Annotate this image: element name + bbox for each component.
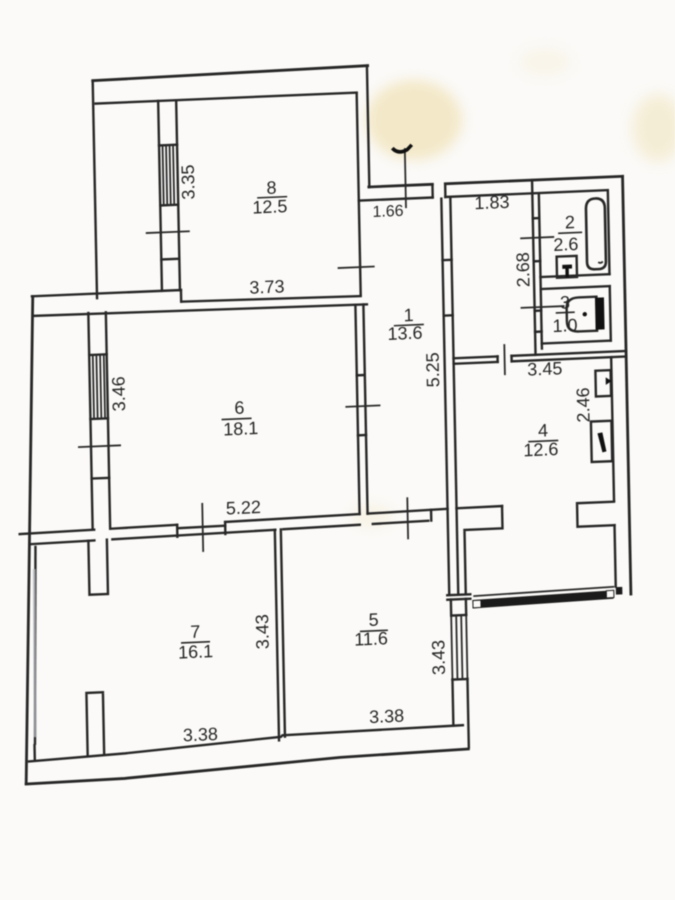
svg-text:3.35: 3.35	[178, 164, 199, 200]
svg-text:3.45: 3.45	[527, 358, 562, 379]
svg-text:2.46: 2.46	[573, 387, 594, 423]
svg-text:5.22: 5.22	[226, 497, 261, 518]
svg-text:1.83: 1.83	[474, 192, 509, 213]
svg-text:8: 8	[266, 178, 276, 198]
svg-text:12.5: 12.5	[252, 196, 287, 217]
svg-text:16.1: 16.1	[178, 641, 213, 662]
svg-text:2: 2	[565, 212, 575, 232]
svg-text:3.73: 3.73	[249, 276, 284, 297]
svg-text:2.68: 2.68	[513, 252, 534, 288]
svg-text:3.38: 3.38	[369, 706, 404, 727]
svg-text:5: 5	[368, 610, 378, 630]
svg-text:3.46: 3.46	[108, 376, 129, 412]
svg-text:3.38: 3.38	[183, 724, 218, 745]
svg-text:3.43: 3.43	[428, 640, 449, 676]
svg-text:2.6: 2.6	[553, 234, 578, 255]
svg-text:4: 4	[538, 420, 548, 440]
svg-text:1.0: 1.0	[552, 315, 577, 336]
svg-text:6: 6	[234, 398, 244, 418]
svg-text:18.1: 18.1	[223, 418, 258, 439]
svg-text:5.25: 5.25	[423, 352, 444, 388]
svg-text:1.66: 1.66	[372, 203, 404, 221]
svg-text:7: 7	[190, 622, 200, 642]
svg-text:3.43: 3.43	[252, 614, 273, 650]
svg-text:3: 3	[560, 292, 570, 312]
